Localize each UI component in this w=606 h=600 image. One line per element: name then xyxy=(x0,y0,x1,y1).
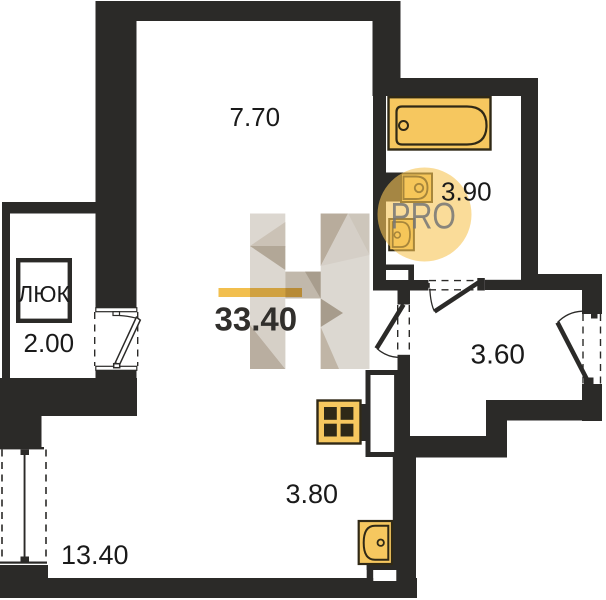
svg-text:3.60: 3.60 xyxy=(471,339,526,370)
svg-text:33.40: 33.40 xyxy=(215,301,298,338)
svg-text:7.70: 7.70 xyxy=(230,102,281,132)
svg-text:2.00: 2.00 xyxy=(24,328,75,358)
svg-text:13.40: 13.40 xyxy=(61,540,129,570)
svg-text:3.90: 3.90 xyxy=(441,177,492,207)
svg-text:ЛЮК: ЛЮК xyxy=(18,281,70,307)
svg-text:3.80: 3.80 xyxy=(286,479,339,509)
